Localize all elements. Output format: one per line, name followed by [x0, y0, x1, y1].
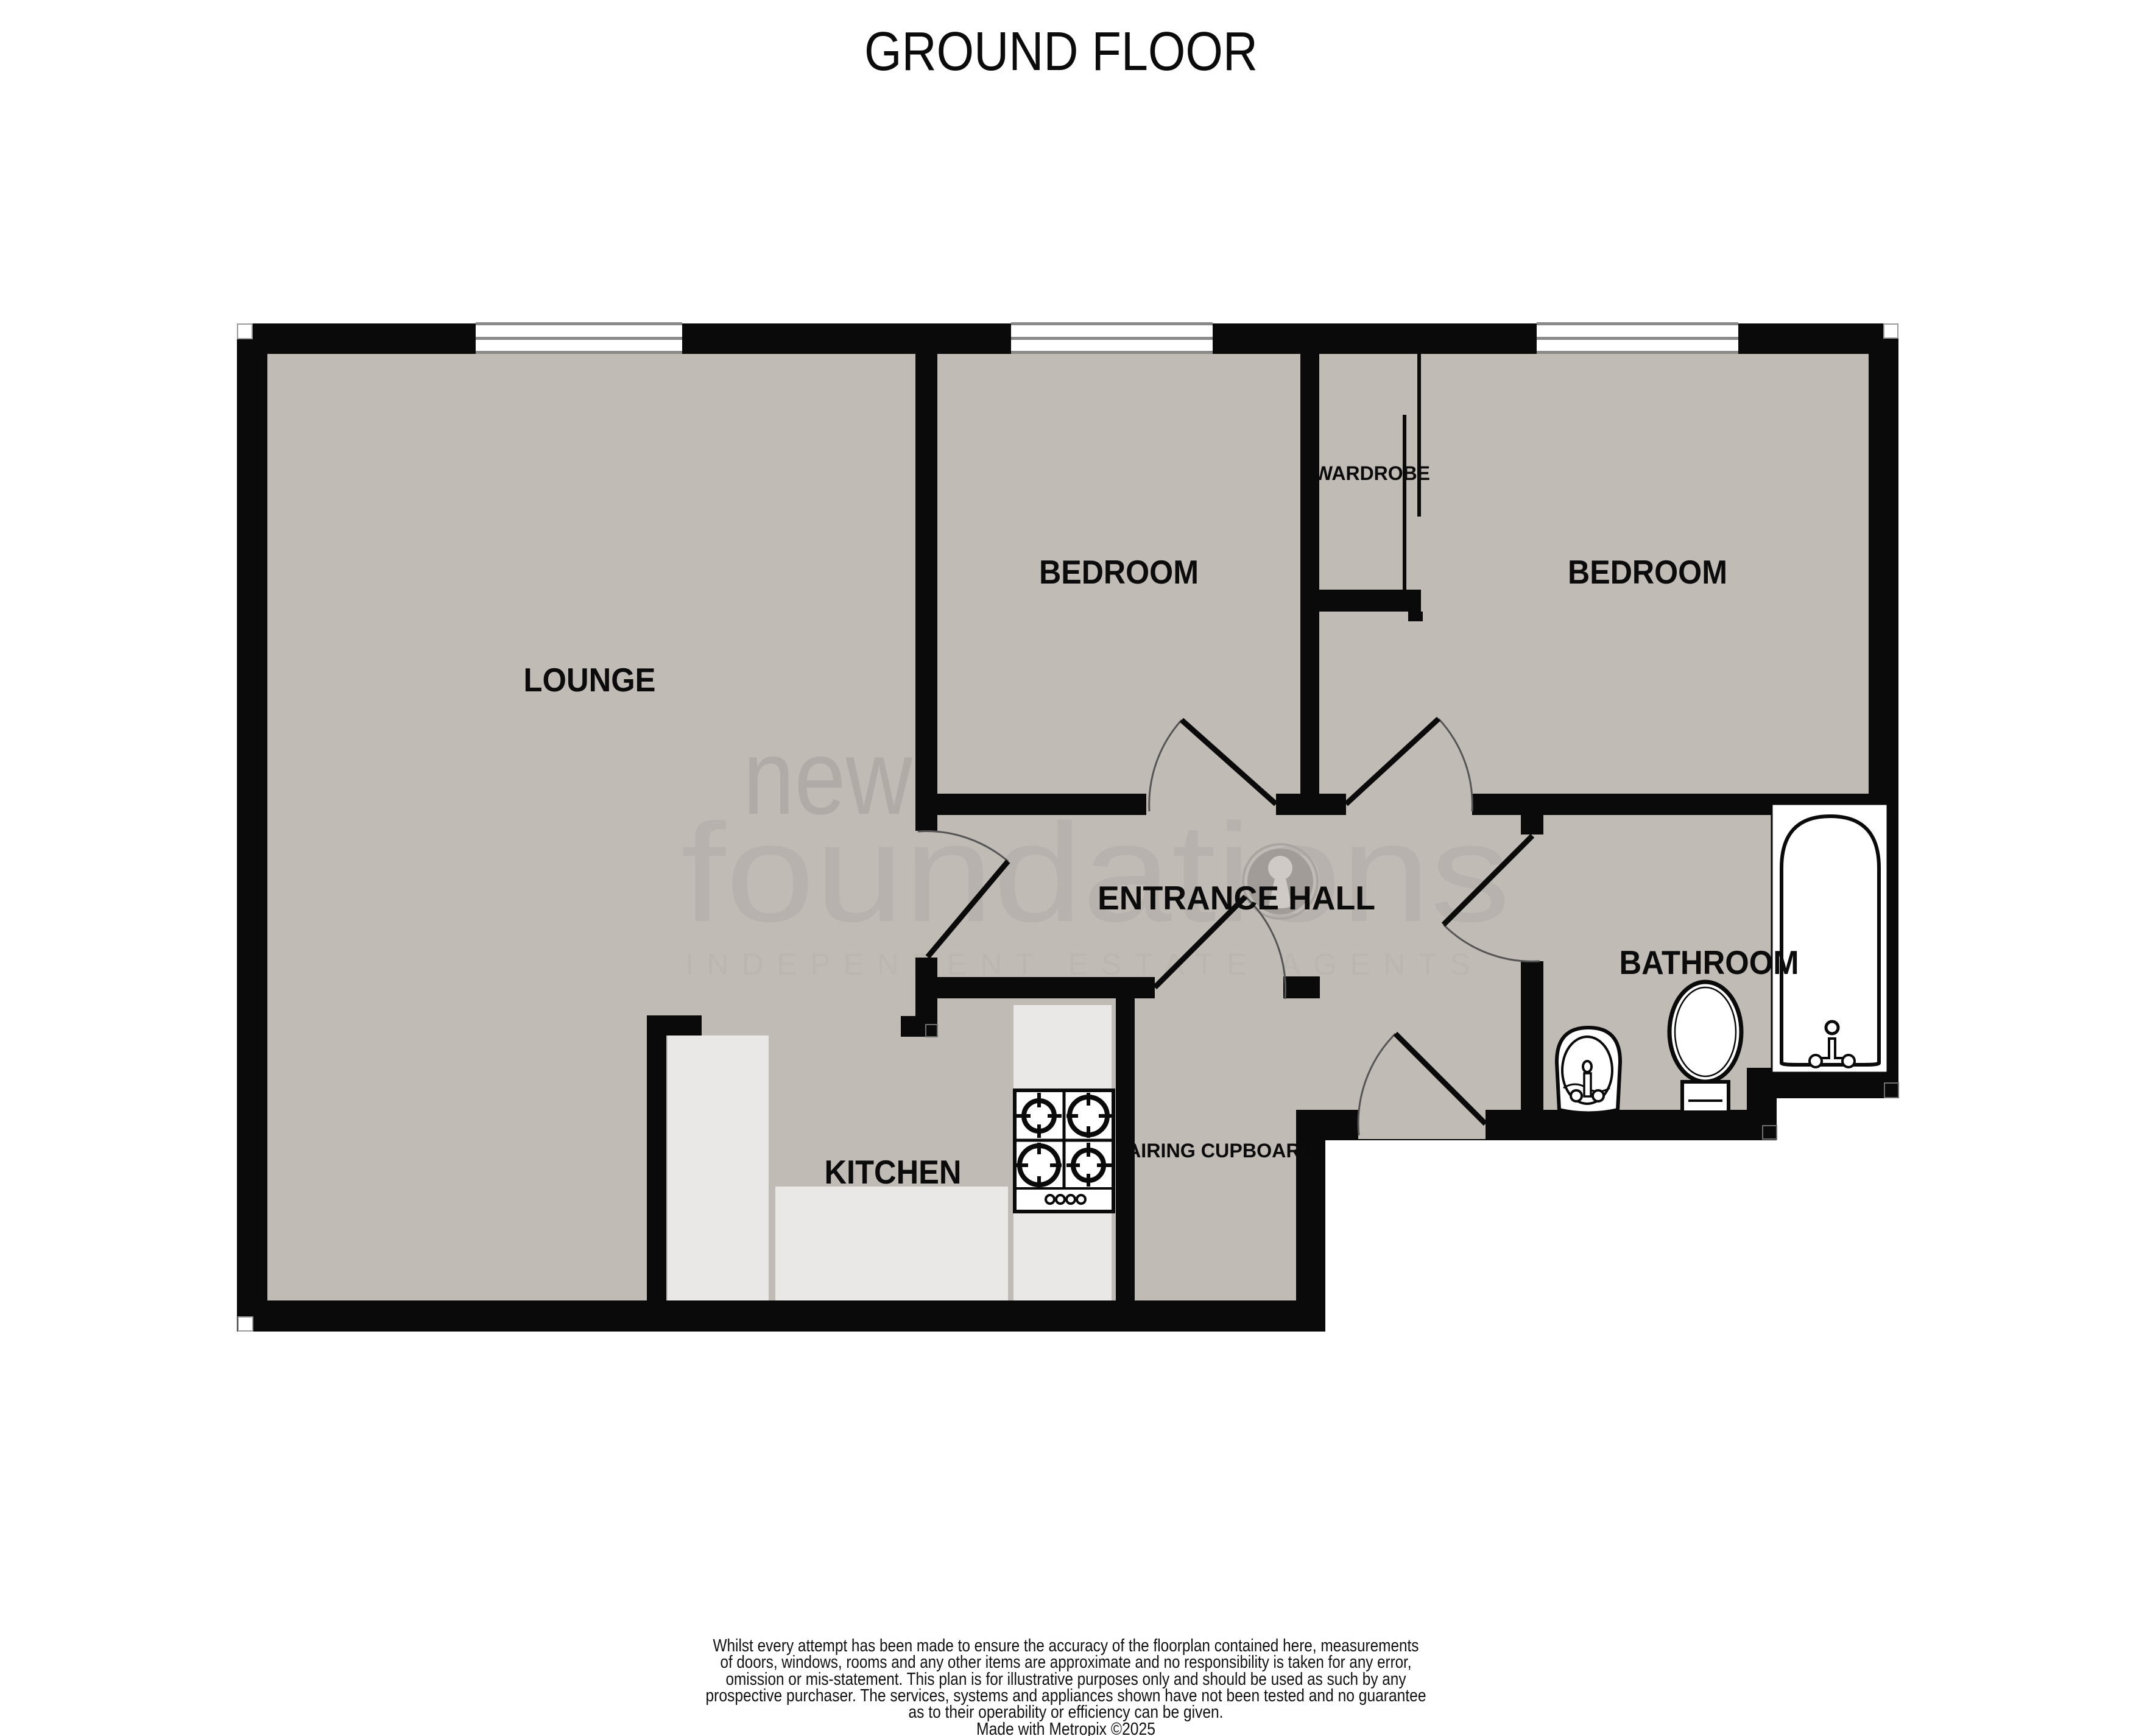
svg-text:WARDROBE: WARDROBE	[1314, 462, 1430, 484]
svg-text:BEDROOM: BEDROOM	[1568, 553, 1727, 591]
svg-text:BATHROOM: BATHROOM	[1620, 944, 1799, 981]
svg-text:KITCHEN: KITCHEN	[825, 1153, 962, 1191]
svg-text:BEDROOM: BEDROOM	[1039, 553, 1199, 591]
svg-text:foundations: foundations	[681, 794, 1510, 951]
svg-text:LOUNGE: LOUNGE	[524, 661, 656, 699]
svg-text:ENTRANCE HALL: ENTRANCE HALL	[1098, 879, 1375, 917]
svg-text:Made with Metropix ©2025: Made with Metropix ©2025	[976, 1720, 1155, 1736]
svg-text:GROUND FLOOR: GROUND FLOOR	[864, 21, 1258, 82]
svg-text:AIRING CUPBOARD: AIRING CUPBOARD	[1127, 1140, 1314, 1162]
